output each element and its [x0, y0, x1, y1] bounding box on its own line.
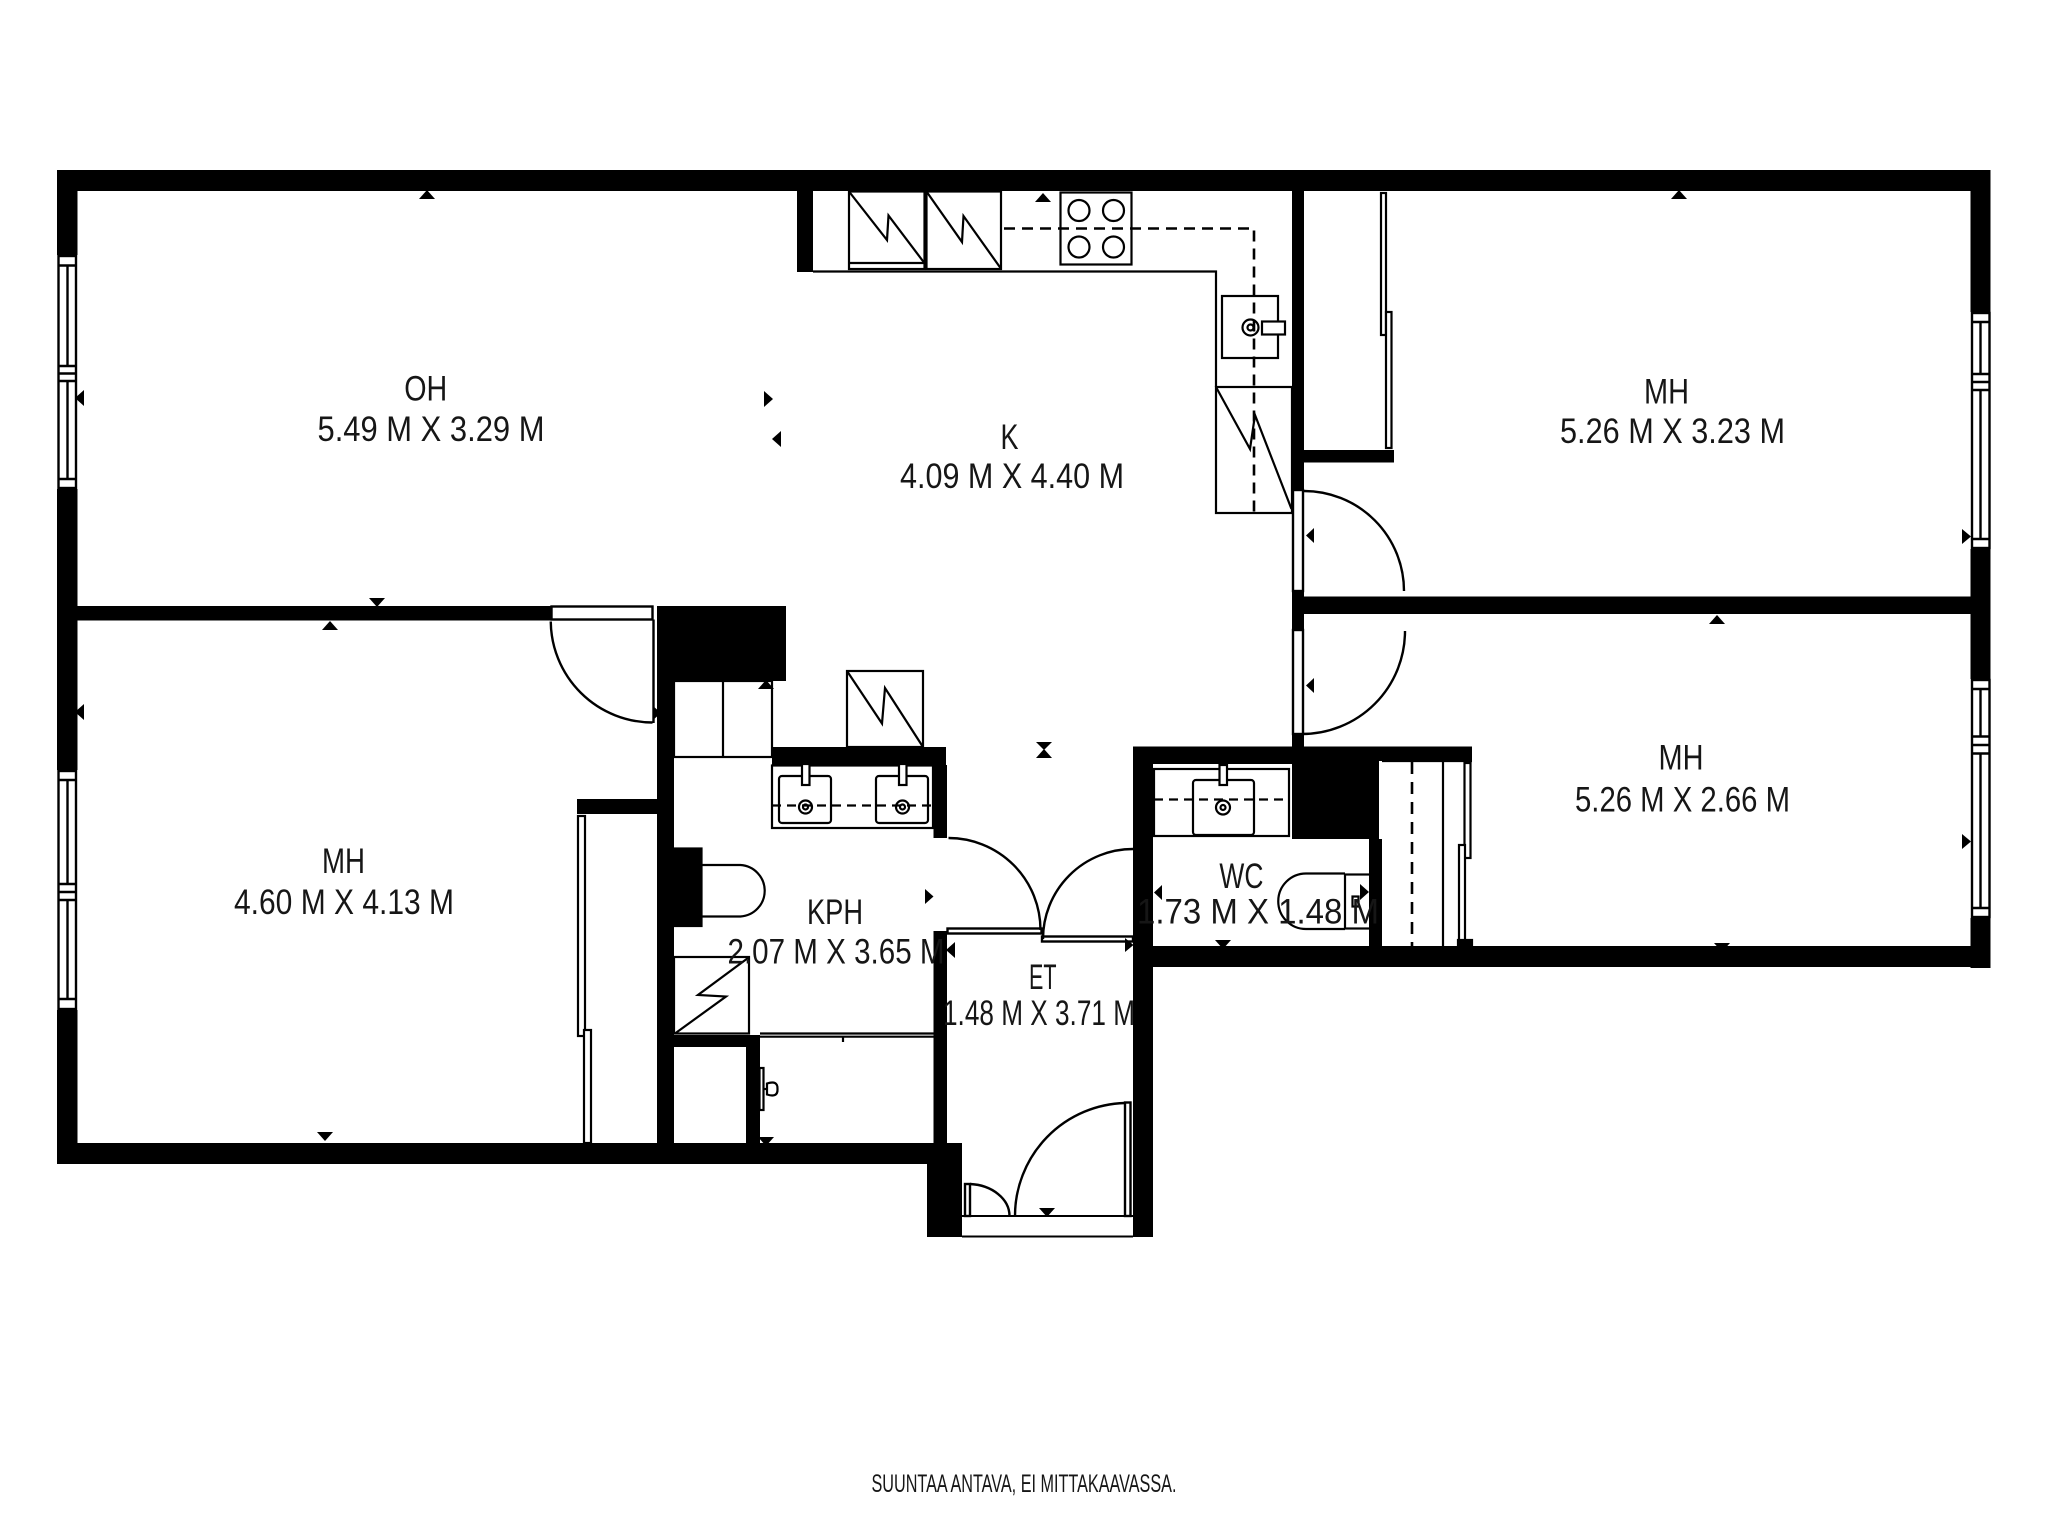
- svg-text:1.48 M X 3.71 M: 1.48 M X 3.71 M: [943, 994, 1135, 1033]
- svg-text:ET: ET: [1029, 958, 1057, 997]
- svg-text:5.26 M X 3.23 M: 5.26 M X 3.23 M: [1560, 412, 1785, 451]
- svg-text:KPH: KPH: [807, 893, 863, 932]
- svg-text:K: K: [1001, 418, 1019, 457]
- svg-text:MH: MH: [322, 842, 365, 881]
- svg-text:MH: MH: [1644, 373, 1689, 412]
- svg-text:1.73 M X 1.48 M: 1.73 M X 1.48 M: [1137, 893, 1379, 932]
- svg-text:MH: MH: [1659, 739, 1704, 778]
- svg-text:WC: WC: [1219, 857, 1263, 896]
- svg-text:SUUNTAA ANTAVA, EI MITTAKAAVAS: SUUNTAA ANTAVA, EI MITTAKAAVASSA.: [872, 1470, 1177, 1498]
- svg-text:2.07 M X 3.65 M: 2.07 M X 3.65 M: [728, 933, 945, 972]
- svg-text:OH: OH: [404, 370, 447, 409]
- svg-text:5.49 M X 3.29 M: 5.49 M X 3.29 M: [318, 410, 545, 449]
- svg-text:4.09 M X 4.40 M: 4.09 M X 4.40 M: [900, 457, 1124, 496]
- svg-text:4.60 M X 4.13 M: 4.60 M X 4.13 M: [234, 883, 454, 922]
- svg-text:5.26 M X 2.66 M: 5.26 M X 2.66 M: [1575, 781, 1790, 820]
